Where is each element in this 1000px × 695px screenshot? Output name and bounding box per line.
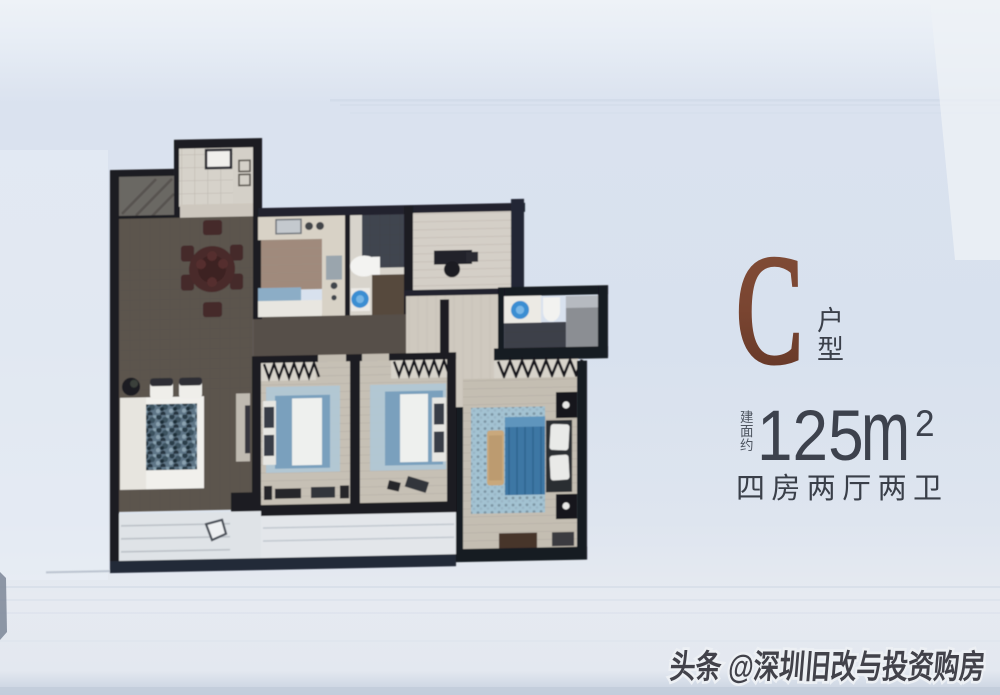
- svg-text:户: 户: [817, 306, 844, 336]
- svg-text:面: 面: [740, 424, 754, 439]
- svg-text:2: 2: [915, 402, 935, 444]
- svg-text:头条 @深圳旧改与投资购房: 头条 @深圳旧改与投资购房: [668, 649, 986, 686]
- svg-text:C: C: [736, 224, 803, 396]
- svg-text:型: 型: [817, 335, 844, 365]
- svg-text:约: 约: [740, 438, 754, 453]
- svg-text:四房两厅两卫: 四房两厅两卫: [736, 472, 948, 505]
- svg-text:125: 125: [757, 397, 864, 476]
- svg-text:建: 建: [740, 410, 754, 425]
- svg-text:m: m: [861, 385, 910, 479]
